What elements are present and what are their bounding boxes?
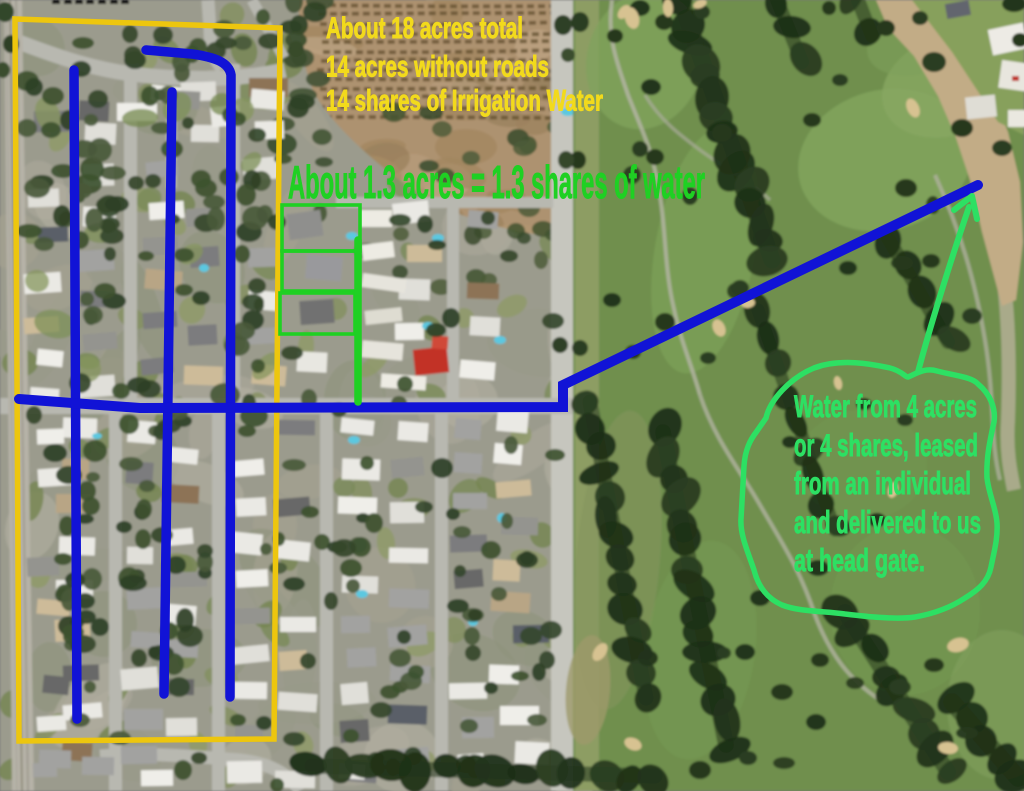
svg-text:or 4 shares, leased: or 4 shares, leased xyxy=(794,427,978,463)
svg-text:from an individual: from an individual xyxy=(794,465,971,501)
svg-text:14 shares of Irrigation Water: 14 shares of Irrigation Water xyxy=(326,85,603,118)
svg-text:About 18 acres total: About 18 acres total xyxy=(326,12,523,45)
svg-text:Water from 4 acres: Water from 4 acres xyxy=(794,388,977,424)
svg-text:at head gate.: at head gate. xyxy=(794,542,925,578)
svg-text:About 1.3 acres = 1.3 shares o: About 1.3 acres = 1.3 shares of water xyxy=(288,156,705,208)
svg-text:14 acres without roads: 14 acres without roads xyxy=(326,51,549,84)
svg-text:and delivered to us: and delivered to us xyxy=(794,504,981,540)
